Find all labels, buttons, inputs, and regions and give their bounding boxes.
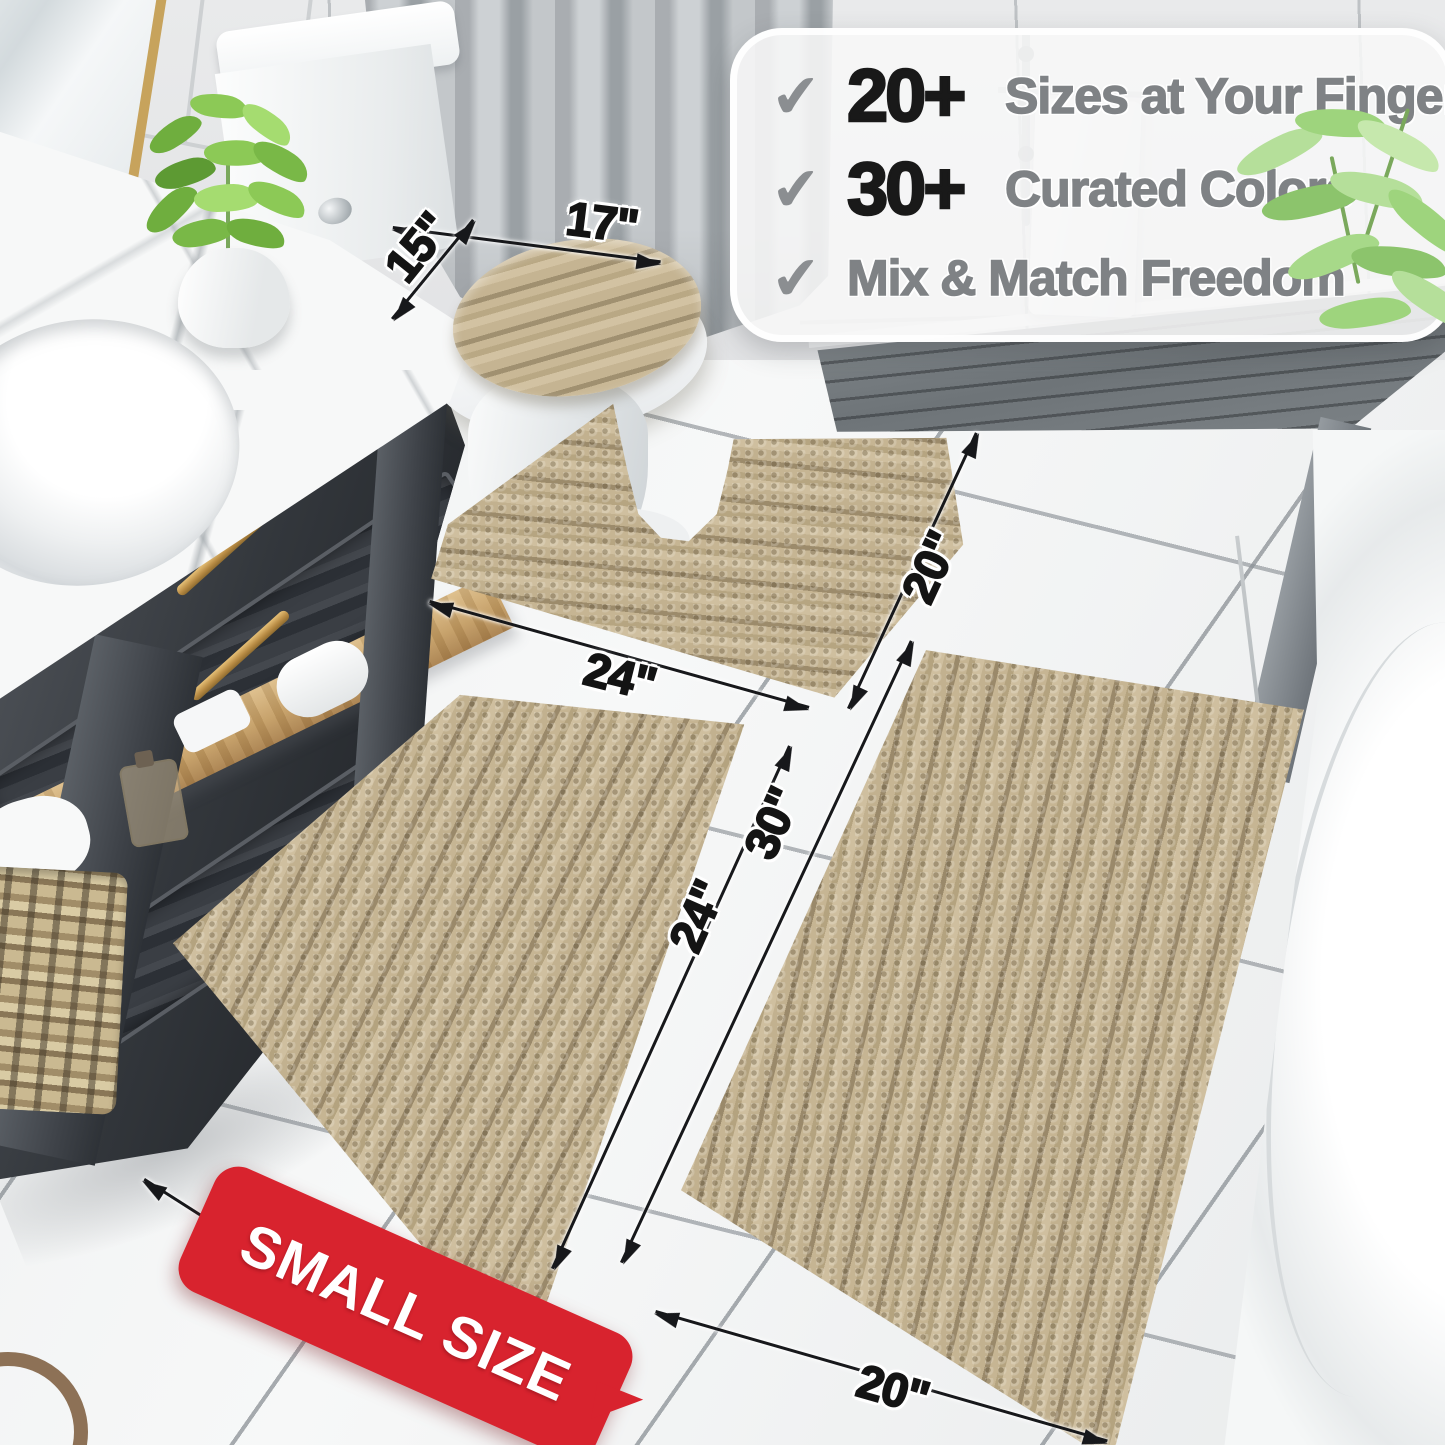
hanging-plant — [1233, 95, 1445, 357]
leaf — [1318, 294, 1412, 331]
potted-plant — [138, 88, 328, 358]
checkmark-icon: ✔ — [769, 240, 850, 315]
woven-basket — [0, 863, 128, 1115]
plant-pot — [178, 248, 290, 348]
feature-stat: 30+ — [847, 146, 1005, 231]
leaf — [1352, 110, 1445, 180]
leaf — [170, 216, 233, 250]
bathroom-product-scene: 17" 15" 24" 20" 16" 24" 30" 20" ✔ 20+ Si… — [0, 0, 1445, 1445]
dim-label-lid-width: 17" — [563, 190, 641, 253]
checkmark-icon: ✔ — [769, 58, 850, 133]
feature-stat: 20+ — [847, 53, 1005, 138]
leaf — [144, 109, 206, 159]
checkmark-icon: ✔ — [769, 151, 850, 226]
